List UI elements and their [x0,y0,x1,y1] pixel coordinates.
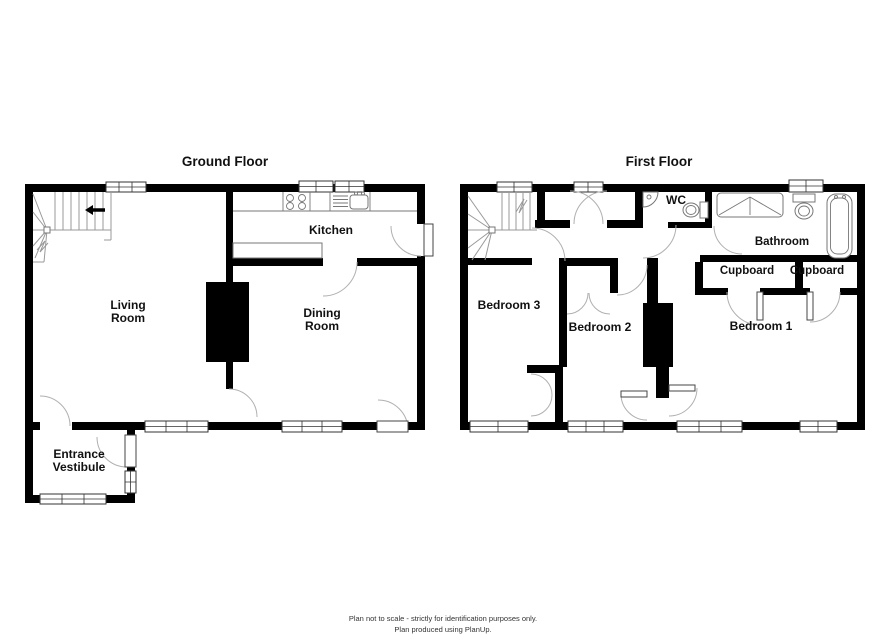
footer-disclaimer: Plan not to scale - strictly for identif… [349,614,537,623]
bedroom2-door-arc [617,265,647,295]
window [145,421,208,432]
window [125,471,136,493]
bedroom2-label: Bedroom 2 [569,320,632,334]
window [574,182,603,192]
kitchen-dining-door-arc [323,262,357,296]
chimney-breast [643,303,673,367]
kitchen-label: Kitchen [309,223,353,237]
window [299,181,333,192]
hob-icon [287,195,306,210]
chimney-breast [206,282,249,362]
dining-room-label-2: Room [305,319,339,333]
bedroom3-closet-doors-arc [531,374,552,416]
kitchen-exterior-door [391,224,433,256]
window [677,421,742,432]
worktop-icon [233,243,322,258]
bedroom1-label: Bedroom 1 [730,319,793,333]
dining-room-label-1: Dining [303,306,340,320]
entrance-vestibule-label-2: Vestibule [53,460,106,474]
bathroom-label: Bathroom [755,236,809,248]
window [789,180,823,192]
cupboard-right-label: Cupboard [790,265,844,277]
stairs-icon [33,192,111,262]
window [282,421,342,432]
drainer-icon [333,196,348,207]
footer-credit: Plan produced using PlanUp. [394,625,491,634]
window [40,494,106,504]
cupboard-right-door [807,292,840,322]
cupboard-left-label: Cupboard [720,265,774,277]
bedroom3-door-arc [532,228,565,261]
bedroom2-wardrobe-doors-arc [567,293,610,314]
bedroom3-label: Bedroom 3 [478,298,541,312]
wc-door-arc [643,225,676,258]
bath-icon [827,194,852,258]
counter-icon [233,192,417,211]
bathroom-door-arc [714,226,742,254]
living-dining-door-arc [229,389,257,417]
living-room-label-1: Living [110,298,145,312]
shower-icon [717,193,783,217]
wc-basin-icon [643,192,658,207]
living-vestibule-door-arc [40,396,70,426]
window [497,182,532,192]
window [568,421,623,432]
window [335,181,364,192]
landing-cupboard-doors-arc [570,191,607,224]
window [470,421,528,432]
wc-toilet-icon [683,202,708,218]
entrance-vestibule-label-1: Entrance [53,447,105,461]
bedroom1-chimney-door [669,385,697,416]
first-floor-title: First Floor [626,154,693,169]
sink-icon [350,192,368,209]
wc-label: WC [666,193,686,207]
ground-floor-title: Ground Floor [182,154,269,169]
living-room-label-2: Room [111,311,145,325]
dining-exterior-door [377,400,408,432]
toilet-icon [793,194,815,219]
window [106,182,146,192]
stairs-icon [468,192,537,260]
floorplan-page: Ground Floor First Floor Living Room Din… [0,0,886,644]
floorplan-drawing: Ground Floor First Floor Living Room Din… [0,0,886,644]
bedroom2-chimney-door [621,391,647,420]
window [800,421,837,432]
